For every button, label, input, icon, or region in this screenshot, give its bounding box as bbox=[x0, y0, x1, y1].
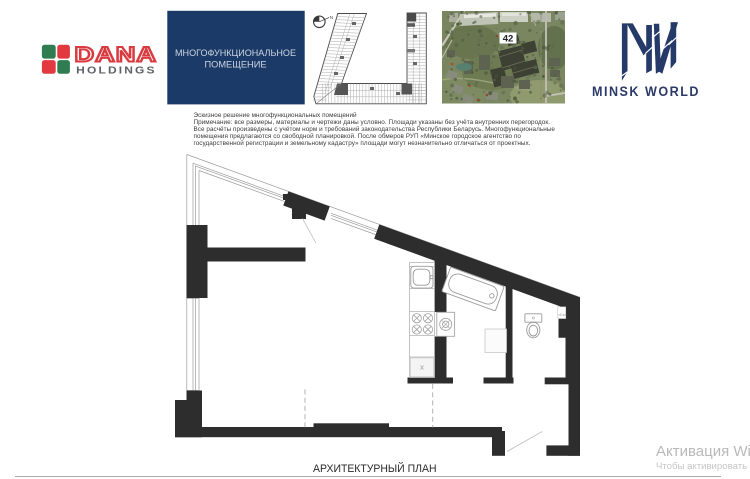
svg-text:АРХИТЕКТУРНЫЙ ПЛАН: АРХИТЕКТУРНЫЙ ПЛАН bbox=[313, 462, 437, 475]
